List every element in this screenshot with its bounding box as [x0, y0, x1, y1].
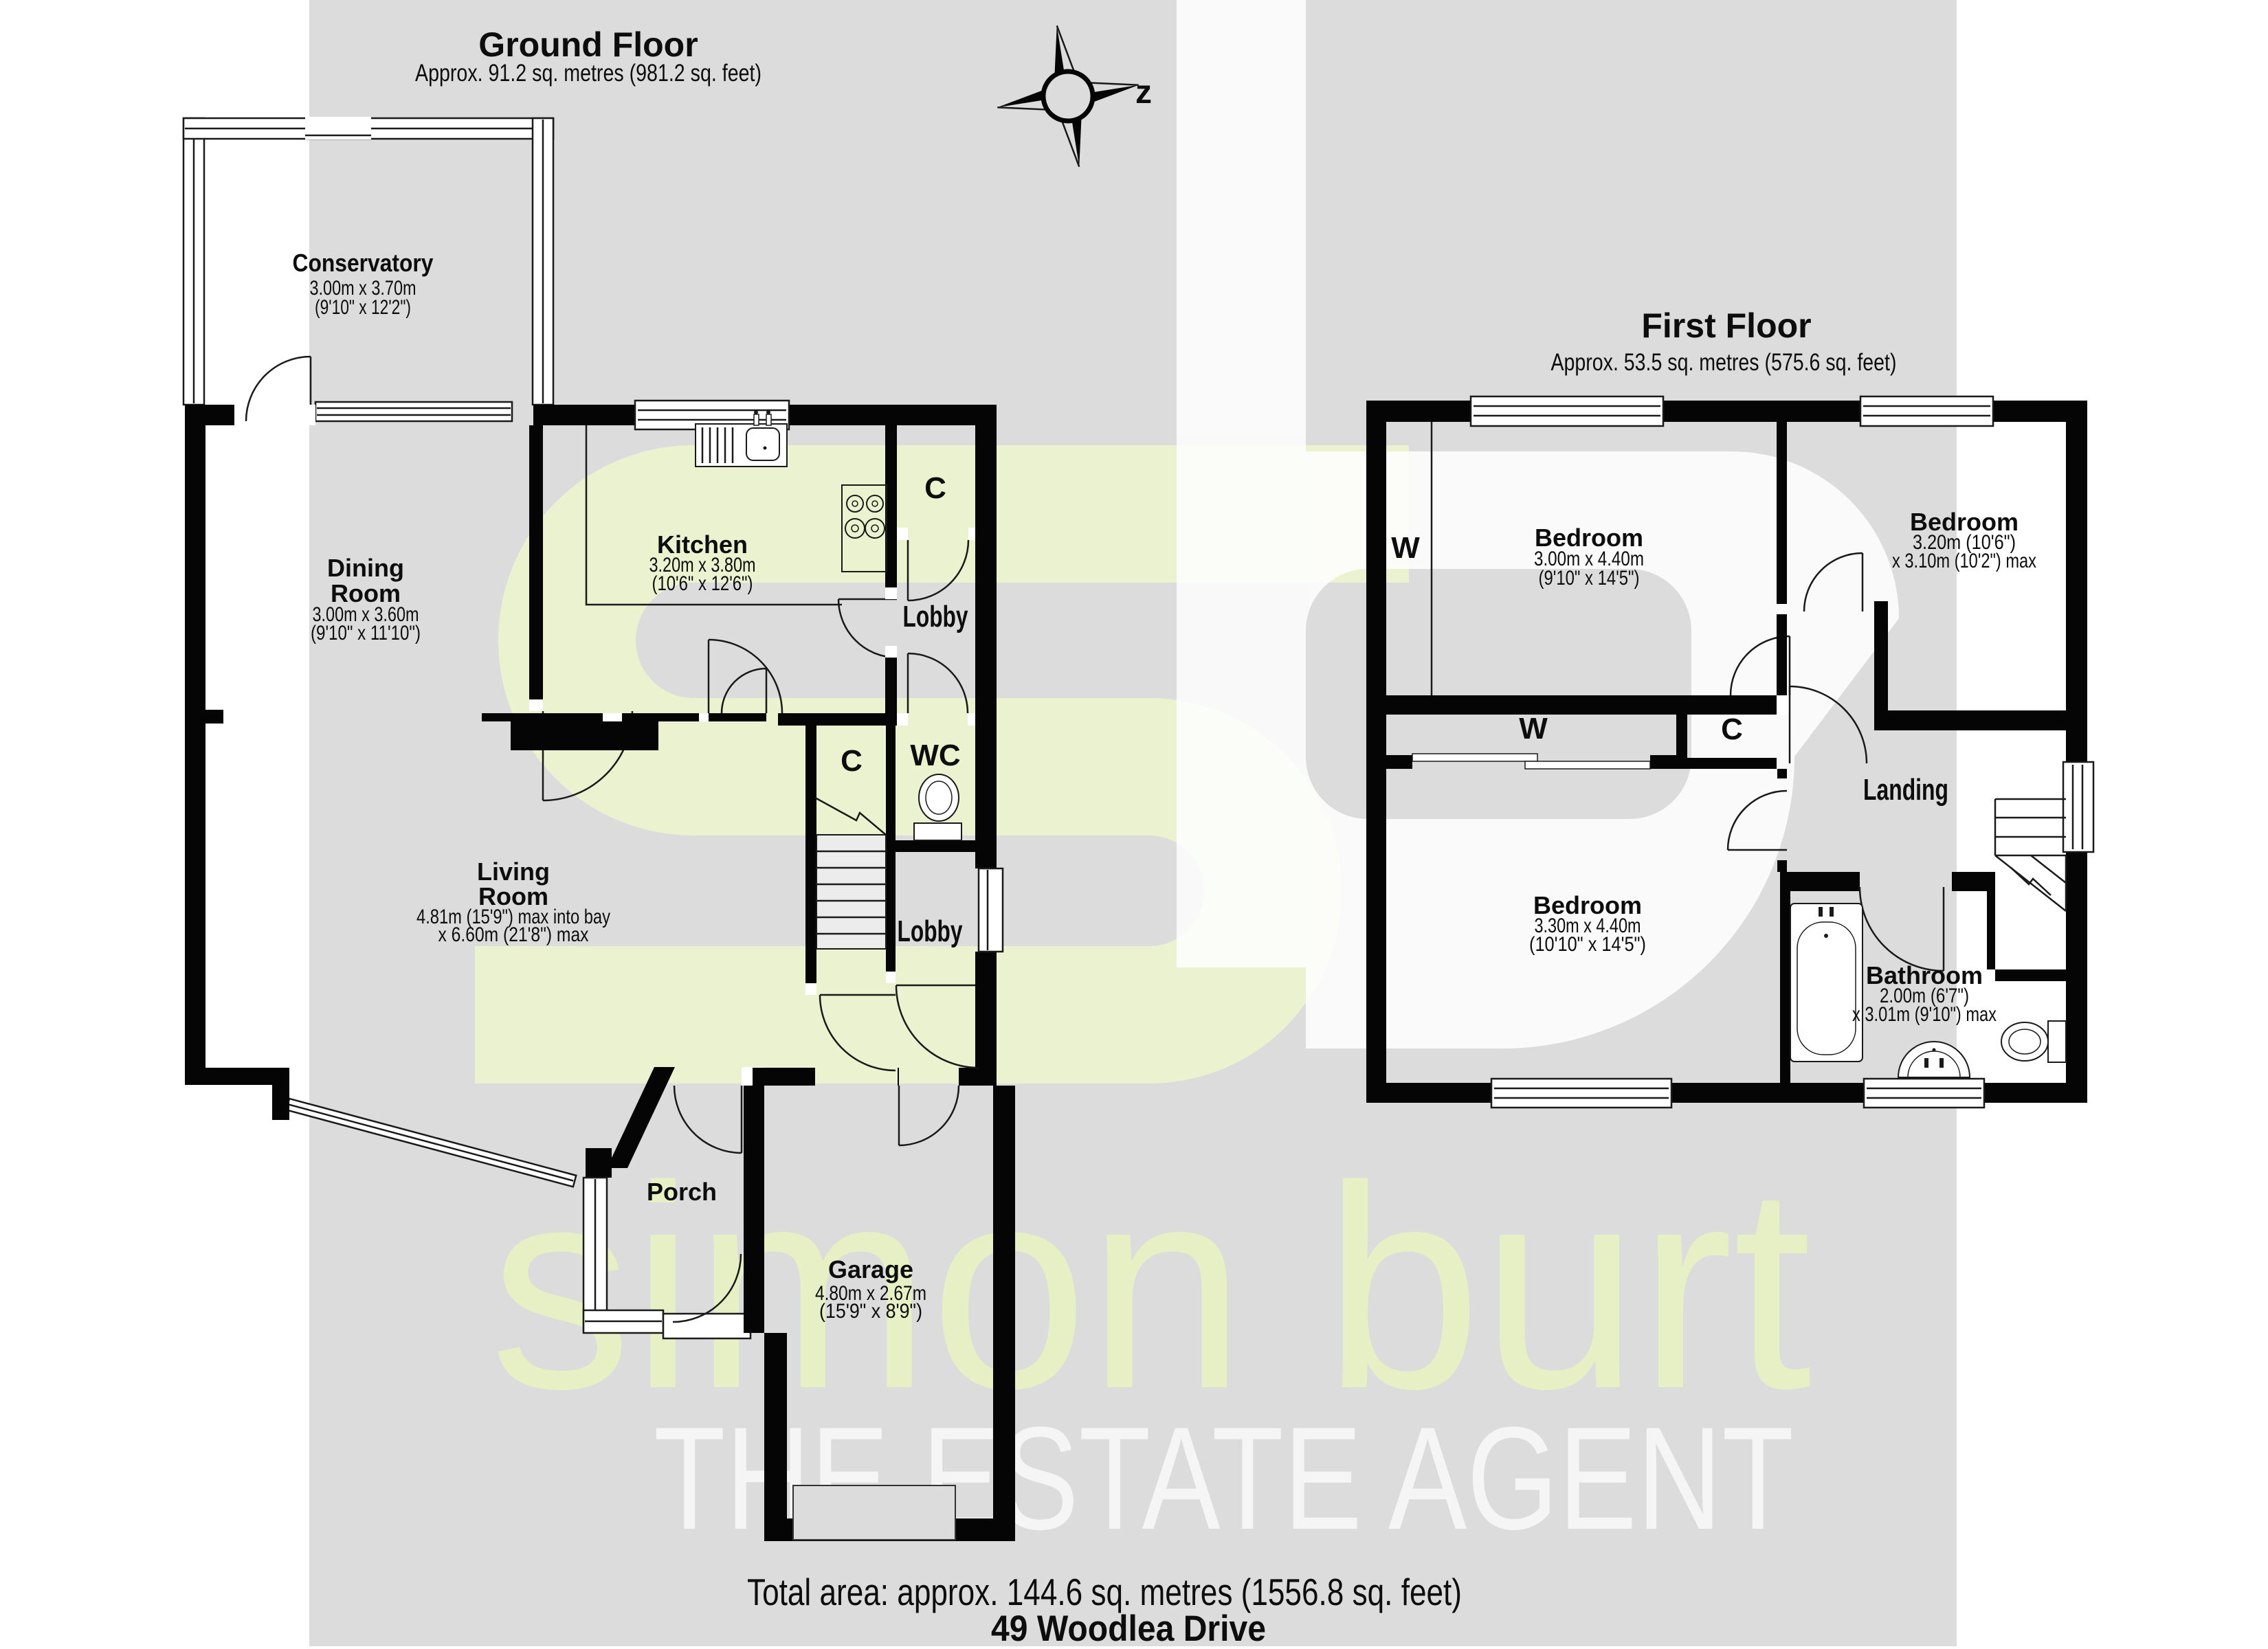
svg-text:W: W — [1519, 712, 1548, 745]
svg-text:Approx. 53.5 sq. metres (575.6: Approx. 53.5 sq. metres (575.6 sq. feet) — [1551, 349, 1897, 376]
svg-text:(10'6" x 12'6"): (10'6" x 12'6") — [652, 572, 753, 595]
svg-text:49 Woodlea Drive: 49 Woodlea Drive — [991, 1608, 1266, 1649]
svg-text:x 6.60m (21'8") max: x 6.60m (21'8") max — [438, 923, 589, 946]
svg-text:W: W — [1391, 531, 1420, 565]
svg-text:Garage: Garage — [828, 1255, 913, 1283]
svg-text:z: z — [1135, 74, 1152, 111]
svg-text:Conservatory: Conservatory — [293, 249, 434, 277]
svg-text:(9'10" x 14'5"): (9'10" x 14'5") — [1539, 567, 1640, 590]
svg-text:C: C — [924, 471, 946, 505]
svg-text:x 3.10m (10'2") max: x 3.10m (10'2") max — [1892, 550, 2036, 572]
svg-text:Living: Living — [477, 857, 550, 886]
svg-text:Approx. 91.2 sq. metres (981.2: Approx. 91.2 sq. metres (981.2 sq. feet) — [415, 60, 761, 87]
svg-text:C: C — [841, 744, 863, 778]
svg-text:Lobby: Lobby — [903, 600, 968, 633]
svg-text:Porch: Porch — [647, 1178, 717, 1206]
svg-text:(15'9" x 8'9"): (15'9" x 8'9") — [819, 1300, 922, 1323]
svg-text:Total area: approx. 144.6 sq.: Total area: approx. 144.6 sq. metres (15… — [747, 1571, 1462, 1613]
svg-text:Dining: Dining — [327, 554, 404, 582]
svg-text:C: C — [1721, 713, 1743, 746]
svg-text:Ground Floor: Ground Floor — [478, 25, 698, 64]
svg-text:Landing: Landing — [1863, 773, 1948, 807]
svg-text:Lobby: Lobby — [898, 915, 963, 948]
svg-text:(9'10" x 12'2"): (9'10" x 12'2") — [315, 296, 411, 319]
svg-text:x 3.01m (9'10") max: x 3.01m (9'10") max — [1852, 1003, 1997, 1026]
svg-text:First Floor: First Floor — [1641, 306, 1811, 345]
svg-text:(10'10" x 14'5"): (10'10" x 14'5") — [1529, 933, 1646, 956]
svg-text:(9'10" x 11'10"): (9'10" x 11'10") — [311, 622, 421, 644]
svg-text:WC: WC — [910, 739, 960, 772]
